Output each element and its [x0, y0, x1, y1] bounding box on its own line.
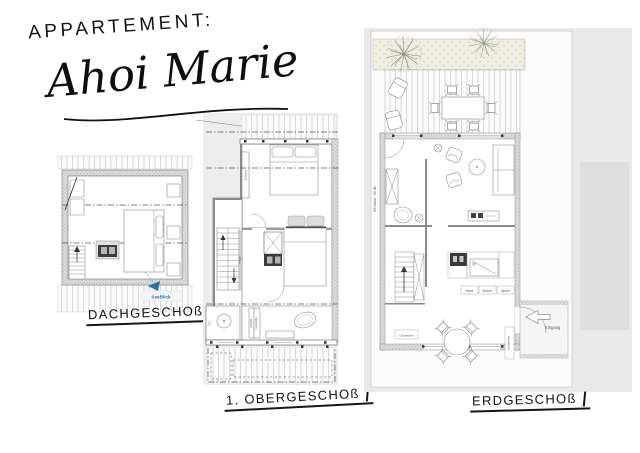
caption-dachgeschoss-text: DACHGESCHOß [88, 303, 204, 322]
roof-hatch-top [58, 156, 192, 169]
erdgeschoss-plan: BS Wand ~ 50 dB [362, 24, 634, 396]
kitchen [448, 252, 514, 278]
stove-label: Herd [466, 289, 473, 293]
closet-row: Schrank Garderobe [249, 308, 260, 338]
double-bed-south [284, 228, 326, 286]
entrance-label: Eingang [545, 325, 561, 330]
wardrobe-entry: Garderobe [505, 327, 514, 359]
apartment-name: Ahoi Marie [44, 33, 300, 108]
closet-label: Schrank [250, 318, 253, 328]
rail-shelf-label: Regal [238, 256, 242, 264]
apartment-heading-text: APPARTEMENT: [27, 10, 214, 44]
bench [266, 331, 294, 338]
shower-room: DU [206, 306, 240, 340]
side-table [167, 263, 180, 276]
entrance-porch: Eingang [520, 301, 568, 358]
caption-tick [583, 391, 586, 406]
caption-obergeschoss-text: 1. OBERGESCHOß [226, 386, 360, 408]
shower-room-label: DU [208, 321, 212, 325]
stove-block [96, 241, 119, 259]
obergeschoss-plan: Schrank Regal [196, 110, 344, 392]
balcony [208, 346, 335, 383]
wardrobe-hall-label: Garderobe [399, 333, 414, 337]
double-bed [124, 210, 164, 272]
caption-erdgeschoss-text: ERDGESCHOß [472, 391, 577, 409]
apartment-heading: APPARTEMENT: [27, 10, 214, 45]
wardrobe: Schrank [242, 152, 249, 198]
roof-hatch [242, 115, 336, 139]
wardrobe-label: Schrank [244, 169, 248, 181]
kitchen-labels: Herd Spülm. Spüle [461, 286, 514, 294]
wardrobe-hall: Garderobe [395, 330, 418, 339]
side-table [167, 184, 180, 197]
sound-wall-note: BS Wand ~ 50 dB [373, 186, 377, 211]
neighbor-area [580, 162, 629, 330]
north-wall [240, 139, 337, 144]
gravel-strip [373, 39, 525, 70]
shaft [264, 232, 282, 266]
page: { "colors": { "accent_blue": "#2e6da4", … [0, 0, 640, 453]
staircase [69, 246, 85, 279]
east-wall [332, 139, 338, 342]
dishwasher-label: Spülm. [482, 289, 493, 293]
dachgeschoss-plan: SeeBlick [50, 150, 200, 318]
apartment-name-text: Ahoi Marie [44, 33, 300, 108]
wardrobe-entry-label: Garderobe [507, 335, 511, 350]
caption-erdgeschoss: ERDGESCHOß [470, 387, 590, 412]
double-bed-north [270, 145, 318, 195]
side-table [167, 226, 180, 239]
seeblick-label: SeeBlick [151, 294, 171, 299]
terrace-table [442, 97, 484, 119]
south-wall [206, 340, 337, 345]
garderobe-label: Garderobe [255, 317, 258, 329]
staircase [395, 252, 424, 302]
sink-label: Spüle [501, 289, 510, 293]
